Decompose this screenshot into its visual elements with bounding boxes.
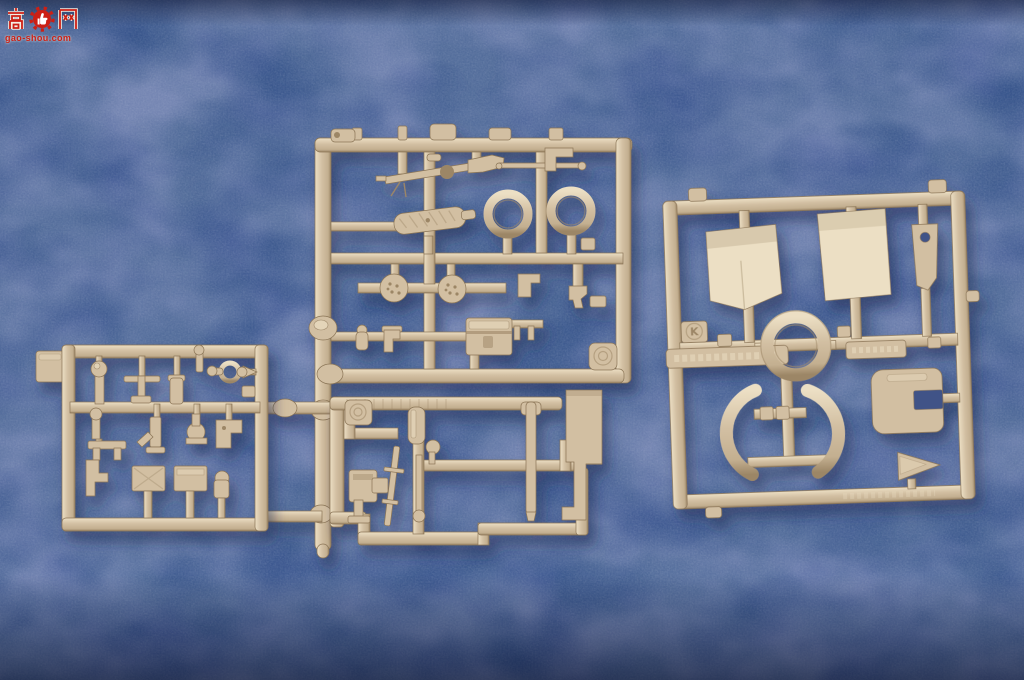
part-notched-housing [871, 368, 944, 434]
part-square-panel [817, 209, 891, 301]
bottom-vignette [0, 575, 1024, 680]
photo-canvas: K [0, 0, 1024, 680]
sprue-letter-k: K [690, 325, 699, 338]
part-trapezoid-plate [706, 224, 783, 311]
watermark-site-text: gao-shou.com [5, 33, 79, 43]
watermark-logo [5, 6, 79, 32]
gear-thumbs-up-icon [28, 5, 56, 33]
part-stippled-disc-right [438, 275, 466, 303]
molding-gate-knob [309, 316, 337, 340]
part-clamp [331, 129, 355, 142]
part-small-cylinder [356, 325, 368, 350]
part-stippled-disc-left [380, 274, 408, 302]
part-capped-cylinder [168, 375, 185, 404]
watermark: gao-shou.com [5, 6, 79, 43]
part-stowage-box [466, 318, 512, 355]
wang-character-icon [57, 7, 79, 31]
photo-model-kit-sprues: gao-shou.com [0, 0, 1024, 680]
top-vignette [0, 0, 1024, 26]
mold-badge-top-sprue [589, 343, 617, 370]
mold-badge-bottom-sprue [345, 400, 372, 425]
part-periscope-post [90, 408, 102, 439]
embossed-text-bar-right [846, 340, 907, 359]
sprue-letter-badge: K [681, 321, 708, 343]
gao-character-icon [5, 7, 27, 31]
part-capped-cylinder [408, 407, 425, 444]
